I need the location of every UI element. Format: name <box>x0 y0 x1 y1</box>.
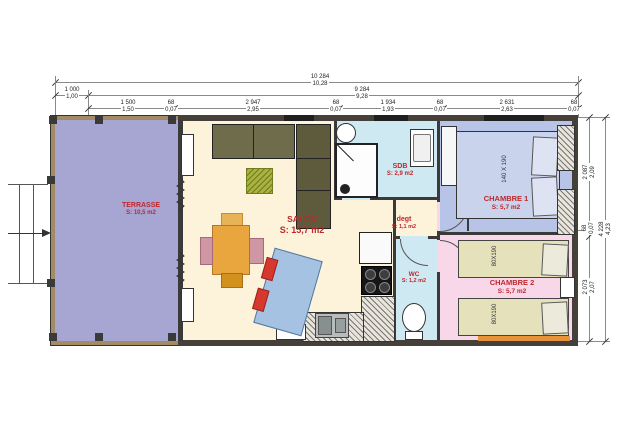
shower-drain <box>340 184 350 194</box>
room-label-degt: degt S: 1,1 m2 <box>382 216 426 230</box>
dim-line-row2 <box>55 95 578 96</box>
washbasin <box>336 123 356 143</box>
burner-icon <box>365 282 376 293</box>
burner-icon <box>379 282 390 293</box>
dining-chair <box>249 238 264 264</box>
room-label-terrasse: TERRASSE S: 10,5 m2 <box>100 202 182 217</box>
pillow <box>541 301 569 334</box>
pillow <box>531 136 559 176</box>
dim-label: 680,07 <box>582 220 596 236</box>
room-label-chambre1: CHAMBRE 1 S: 5,7 m2 <box>462 195 550 211</box>
post <box>47 176 55 184</box>
wardrobe <box>557 125 575 171</box>
dim-label: 1 9341,93 <box>368 100 408 114</box>
room-terrasse <box>55 120 180 341</box>
post <box>95 116 103 124</box>
dim-label: 1 0001,00 <box>55 87 89 101</box>
window <box>374 115 408 121</box>
window <box>484 115 544 121</box>
post <box>49 116 57 124</box>
dining-chair <box>200 237 213 265</box>
dim-label: 2 0872,09 <box>583 152 597 192</box>
dim-label-total: 10 28410,28 <box>296 74 344 88</box>
window <box>284 115 314 121</box>
dim-label: 680,07 <box>566 100 582 114</box>
post <box>47 279 55 287</box>
post <box>49 333 57 341</box>
room-label-chambre2: CHAMBRE 2 S: 5,7 m2 <box>468 279 556 295</box>
wardrobe <box>557 189 575 235</box>
washing-machine-drum <box>413 134 431 162</box>
toilet <box>402 303 426 332</box>
dim-label: 680,07 <box>163 100 179 114</box>
spring-symbol-icon <box>176 252 185 289</box>
toilet-tank <box>405 331 423 340</box>
entry-steps <box>8 283 48 284</box>
bed-size-label: 80X190 <box>492 239 498 273</box>
room-label-salon: SALON S: 15,7 m2 <box>258 215 346 235</box>
dim-label: 2 6312,63 <box>487 100 527 114</box>
sink-drainer <box>335 318 346 333</box>
bed-size-label: 80X190 <box>492 297 498 331</box>
dim-label: 2 0732,07 <box>583 267 597 307</box>
bed-size-label: 140 X 190 <box>502 149 508 189</box>
dining-table <box>212 225 250 275</box>
post <box>95 333 103 341</box>
window <box>181 288 194 322</box>
cabinet-divider <box>296 158 331 159</box>
cabinet-divider <box>253 124 254 159</box>
floor-plan: 10 28410,28 1 0001,00 9 2849,28 1 5001,5… <box>0 0 619 438</box>
entry-steps <box>8 184 48 185</box>
dim-label: 1 5001,50 <box>108 100 148 114</box>
rug-strip <box>478 336 570 341</box>
nightstand <box>560 277 575 298</box>
dim-label: 2 9472,95 <box>233 100 273 114</box>
post <box>168 116 176 124</box>
kitchen-mat <box>246 168 273 194</box>
cabinet-divider <box>296 190 331 191</box>
dim-label: 680,07 <box>328 100 344 114</box>
room-label-sdb: SDB S: 2,9 m2 <box>374 163 426 178</box>
pillow <box>541 243 569 276</box>
dim-label-right-total: 4 2284,23 <box>599 209 613 249</box>
fridge <box>359 232 392 264</box>
kitchen-counter <box>361 296 395 342</box>
chambre1-side-unit <box>441 126 457 186</box>
sink-bowl <box>318 316 332 335</box>
dim-label: 9 2849,28 <box>340 87 384 101</box>
dim-label: 680,07 <box>432 100 448 114</box>
burner-icon <box>365 269 376 280</box>
entry-arrow-icon <box>8 233 44 234</box>
dining-chair <box>221 273 243 288</box>
post <box>168 333 176 341</box>
burner-icon <box>379 269 390 280</box>
window <box>181 134 194 176</box>
room-label-wc: WC S: 1,2 m2 <box>394 271 434 285</box>
